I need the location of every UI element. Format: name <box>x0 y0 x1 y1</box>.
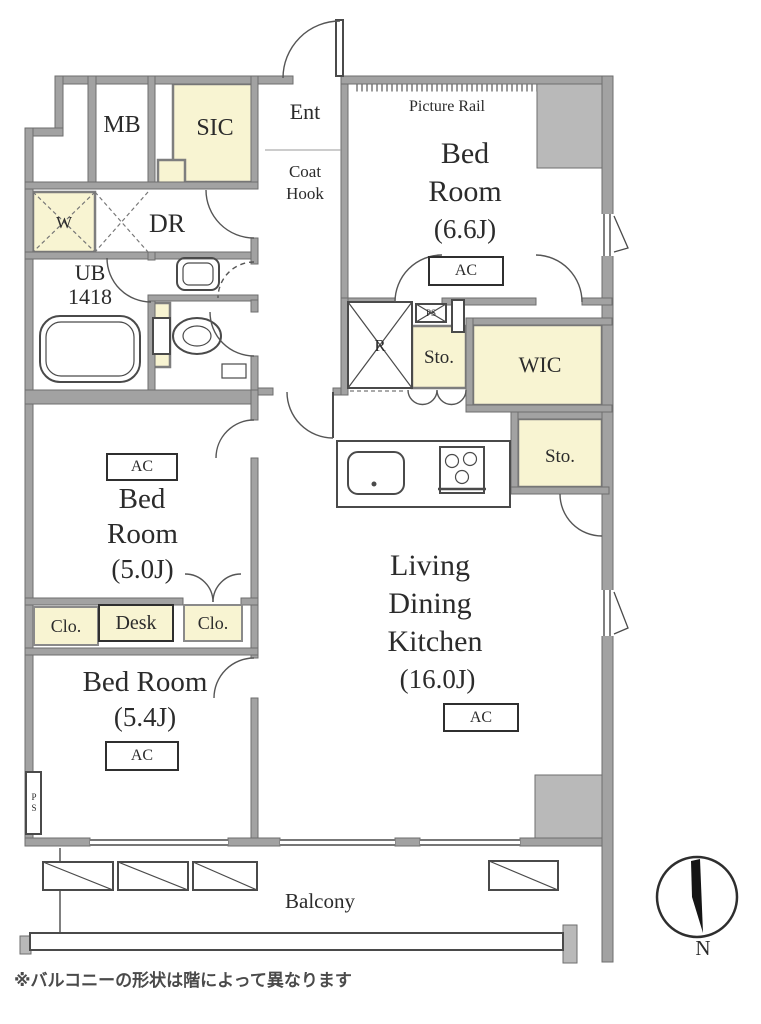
room-label-sic: SIC <box>180 112 250 144</box>
washbasin-icon <box>177 258 219 290</box>
bedroom66-size: (6.6J) <box>395 212 535 246</box>
room-label-dr: DR <box>135 206 199 242</box>
bedroom66-label-1: Bed <box>400 136 530 172</box>
bedroom50-size: (5.0J) <box>75 552 210 586</box>
closet-right: Clo. <box>183 604 243 642</box>
ldk-label-2: Dining <box>350 586 510 622</box>
bedroom50-label-1: Bed <box>92 482 192 516</box>
coat-hook-label-1: Coat <box>270 160 340 182</box>
room-label-mb: MB <box>94 110 150 140</box>
ldk-label-1: Living <box>350 548 510 584</box>
closet-left: Clo. <box>33 606 99 646</box>
ac-unit-bedroom54: AC <box>105 741 179 771</box>
washer-label: W <box>44 206 84 238</box>
balcony-footnote: ※バルコニーの形状は階によって異なります <box>14 966 484 994</box>
balcony-label: Balcony <box>268 886 372 916</box>
bedroom54-label: Bed Room <box>50 664 240 700</box>
bathtub-icon <box>40 316 140 382</box>
storage-right-label: Sto. <box>522 440 598 472</box>
ldk-size: (16.0J) <box>355 662 520 696</box>
ps-left-label: PS <box>25 774 42 832</box>
kitchen-counter-icon <box>337 441 510 507</box>
storage-mid-label: Sto. <box>406 342 472 372</box>
ps-top-label: PS <box>416 304 446 322</box>
bedroom66-label-2: Room <box>385 174 545 210</box>
toilet-icon <box>153 318 246 378</box>
ac-unit-ldk: AC <box>443 703 519 732</box>
floorplan-canvas: MB SIC Ent Coat Hook DR W UB 1418 Pictur… <box>0 0 761 1024</box>
compass-icon <box>657 857 737 937</box>
refrigerator-label: R <box>360 330 400 360</box>
ldk-label-3: Kitchen <box>345 624 525 660</box>
picture-rail-label: Picture Rail <box>367 96 527 118</box>
ac-unit-bedroom66: AC <box>428 256 504 286</box>
compass-north-label: N <box>686 934 720 962</box>
ac-unit-bedroom50: AC <box>106 453 178 481</box>
desk: Desk <box>98 604 174 642</box>
coat-hook-label-2: Hook <box>270 182 340 204</box>
bedroom54-size: (5.4J) <box>78 700 212 734</box>
bedroom50-label-2: Room <box>75 516 210 552</box>
room-label-ub-size: 1418 <box>44 284 136 310</box>
room-label-ub: UB <box>50 260 130 286</box>
room-label-entrance: Ent <box>272 98 338 126</box>
wic-label: WIC <box>500 348 580 382</box>
